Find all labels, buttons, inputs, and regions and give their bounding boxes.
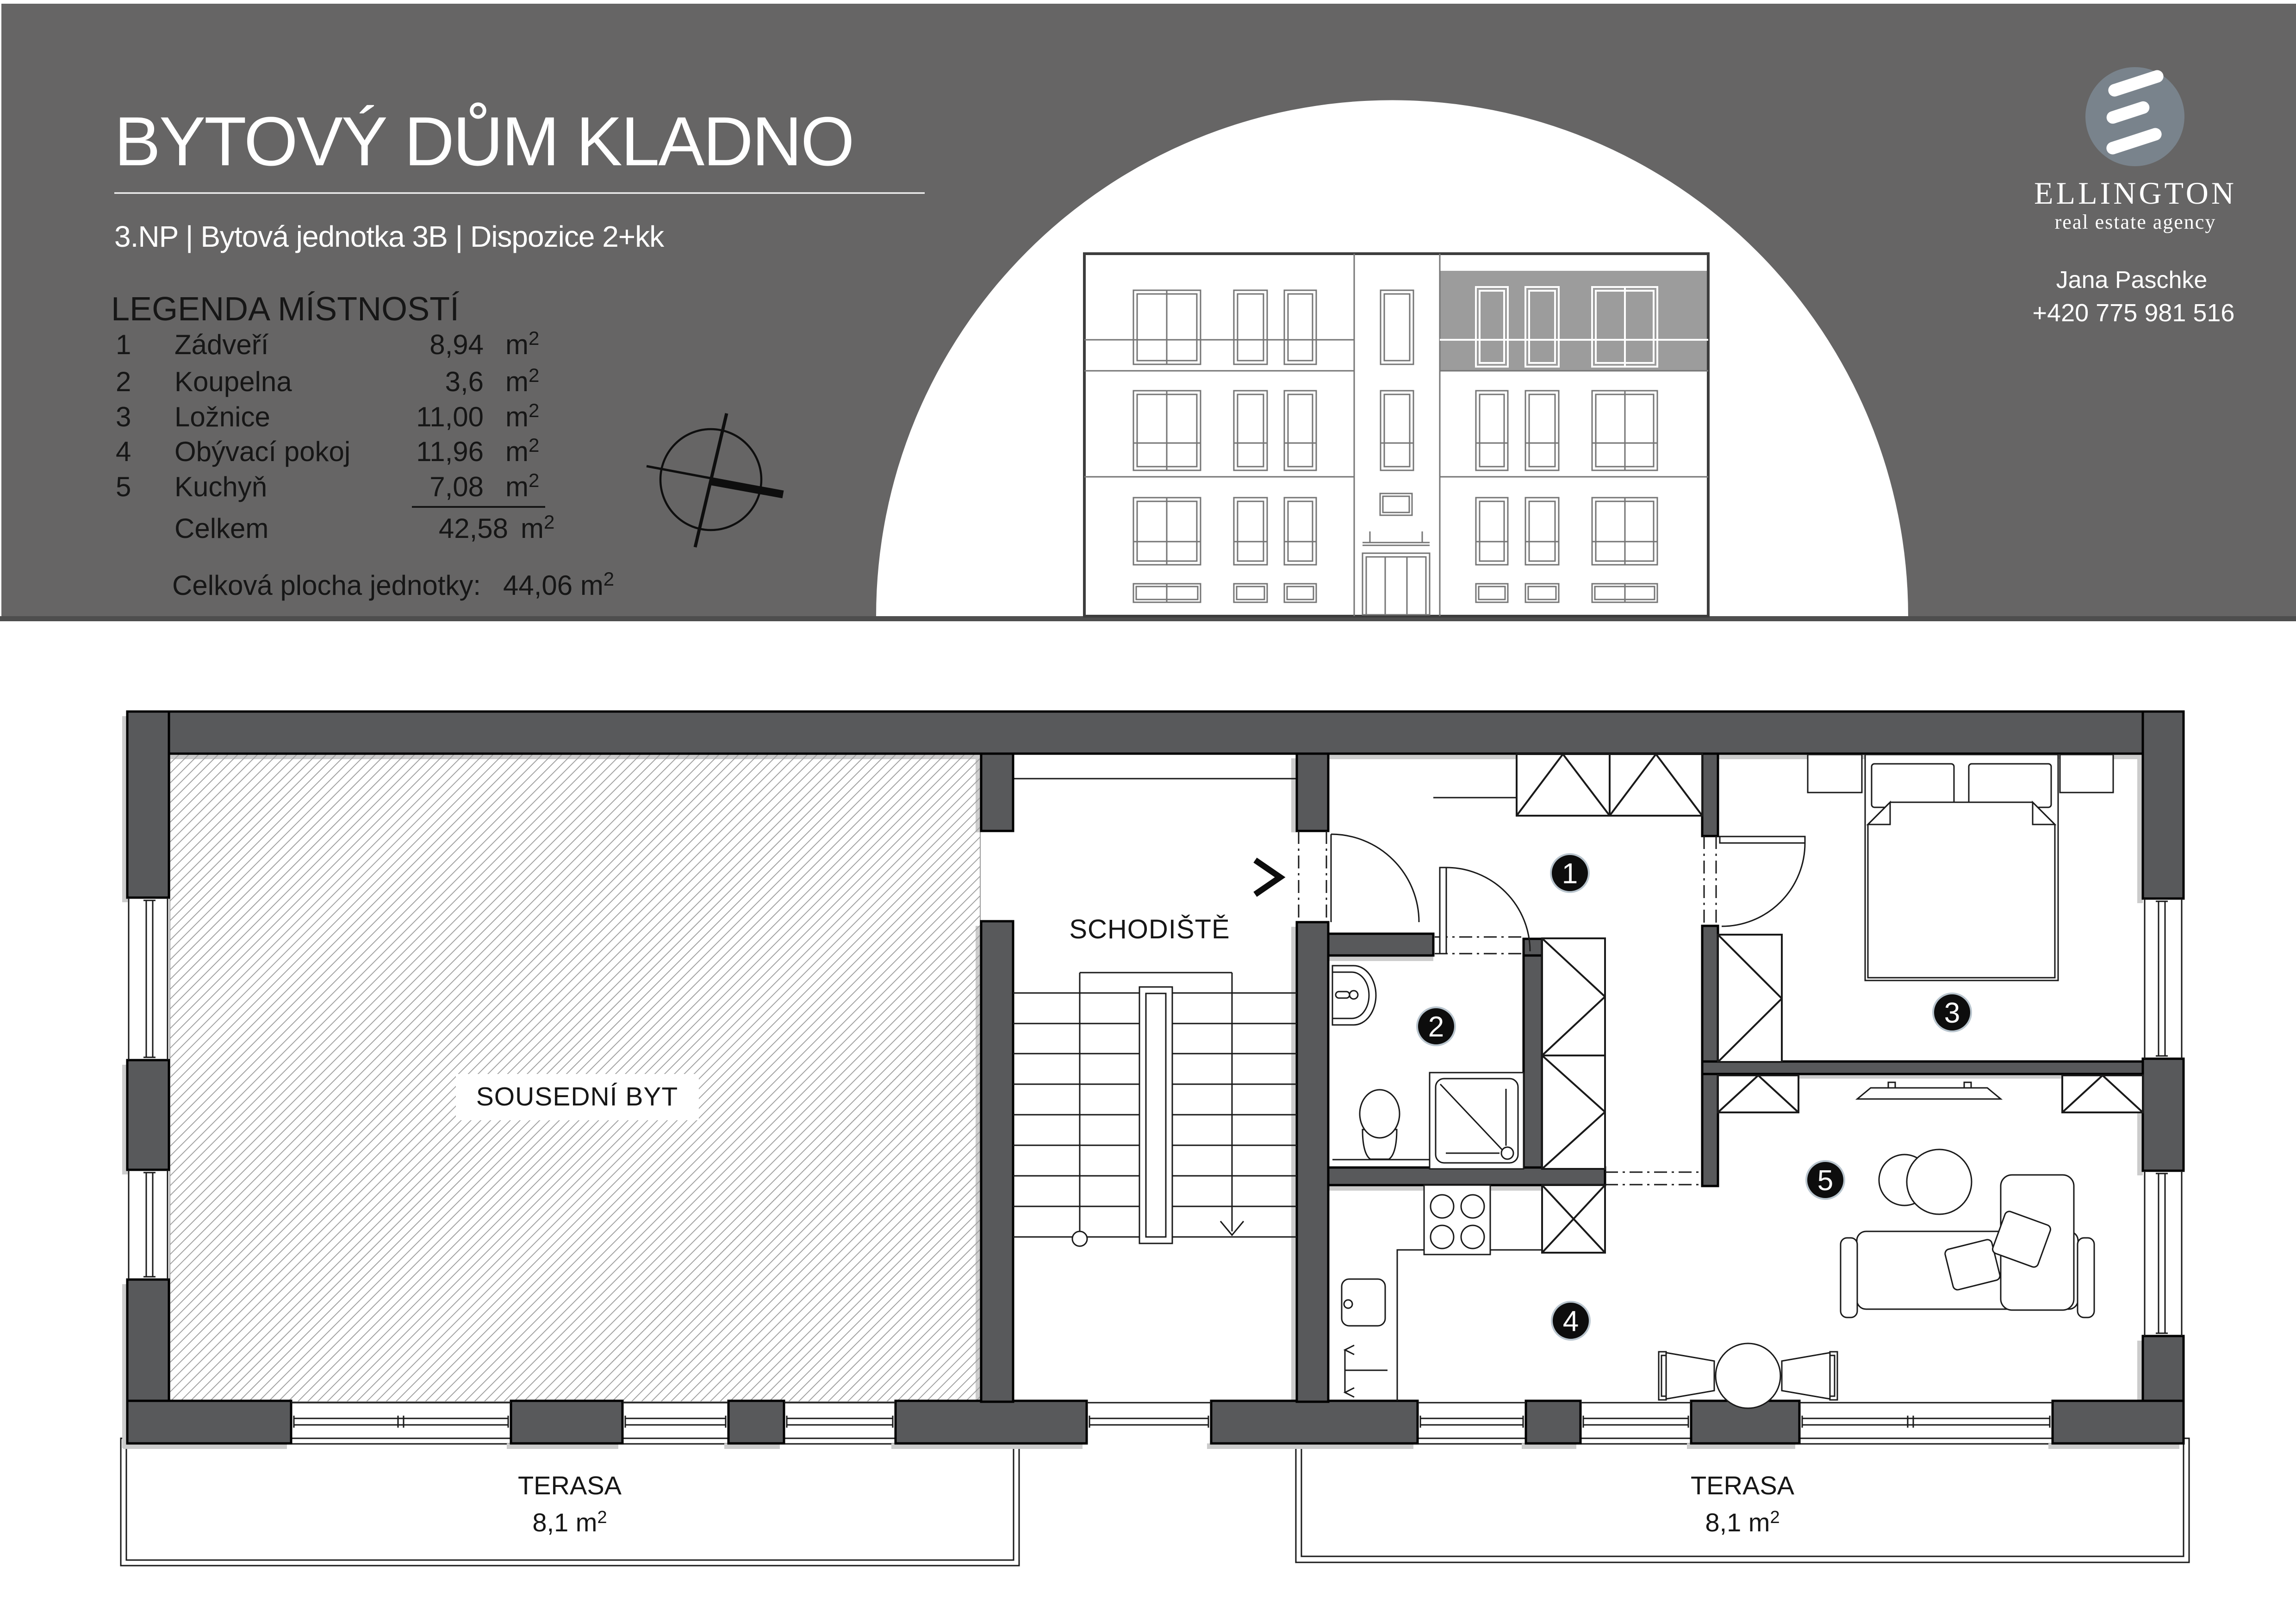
svg-text:11,96: 11,96 [416, 436, 484, 467]
svg-text:+420 775 981 516: +420 775 981 516 [2033, 299, 2235, 327]
svg-text:1: 1 [116, 329, 131, 360]
svg-text:2: 2 [116, 366, 131, 397]
svg-text:Koupelna: Koupelna [174, 366, 292, 397]
svg-text:4: 4 [1563, 1305, 1579, 1337]
svg-text:8,1 m2: 8,1 m2 [1705, 1508, 1780, 1537]
svg-text:BYTOVÝ DŮM KLADNO: BYTOVÝ DŮM KLADNO [114, 102, 853, 180]
svg-text:Jana Paschke: Jana Paschke [2056, 267, 2208, 293]
svg-text:Celková plocha jednotky:: Celková plocha jednotky: [172, 570, 481, 601]
svg-text:2: 2 [1428, 1011, 1444, 1043]
svg-text:5: 5 [1817, 1165, 1833, 1197]
svg-text:7,08: 7,08 [429, 471, 484, 502]
svg-text:SOUSEDNÍ BYT: SOUSEDNÍ BYT [476, 1082, 678, 1111]
svg-text:Zádveří: Zádveří [174, 329, 269, 360]
svg-text:4: 4 [116, 436, 131, 467]
svg-text:3: 3 [116, 401, 131, 432]
svg-text:Kuchyň: Kuchyň [174, 471, 267, 502]
svg-text:TERASA: TERASA [518, 1471, 622, 1500]
svg-text:42,58: 42,58 [439, 513, 508, 544]
svg-text:1: 1 [1562, 858, 1578, 890]
svg-text:3,6: 3,6 [445, 366, 484, 397]
svg-text:Celkem: Celkem [174, 513, 268, 544]
svg-text:11,00: 11,00 [416, 401, 484, 432]
svg-text:real estate agency: real estate agency [2055, 211, 2216, 233]
svg-text:Obývací pokoj: Obývací pokoj [174, 436, 350, 467]
svg-text:3.NP | Bytová jednotka 3B | Di: 3.NP | Bytová jednotka 3B | Dispozice 2+… [114, 220, 665, 253]
svg-text:44,06 m2: 44,06 m2 [503, 568, 614, 601]
svg-text:5: 5 [116, 471, 131, 502]
svg-text:LEGENDA MÍSTNOSTÍ: LEGENDA MÍSTNOSTÍ [111, 291, 459, 328]
svg-text:3: 3 [1944, 997, 1960, 1029]
svg-text:SCHODIŠTĚ: SCHODIŠTĚ [1069, 914, 1230, 944]
svg-text:Ložnice: Ložnice [174, 401, 270, 432]
svg-text:8,94: 8,94 [429, 329, 484, 360]
svg-text:TERASA: TERASA [1691, 1471, 1795, 1500]
svg-text:8,1 m2: 8,1 m2 [532, 1508, 607, 1537]
svg-text:ELLINGTON: ELLINGTON [2034, 175, 2237, 211]
